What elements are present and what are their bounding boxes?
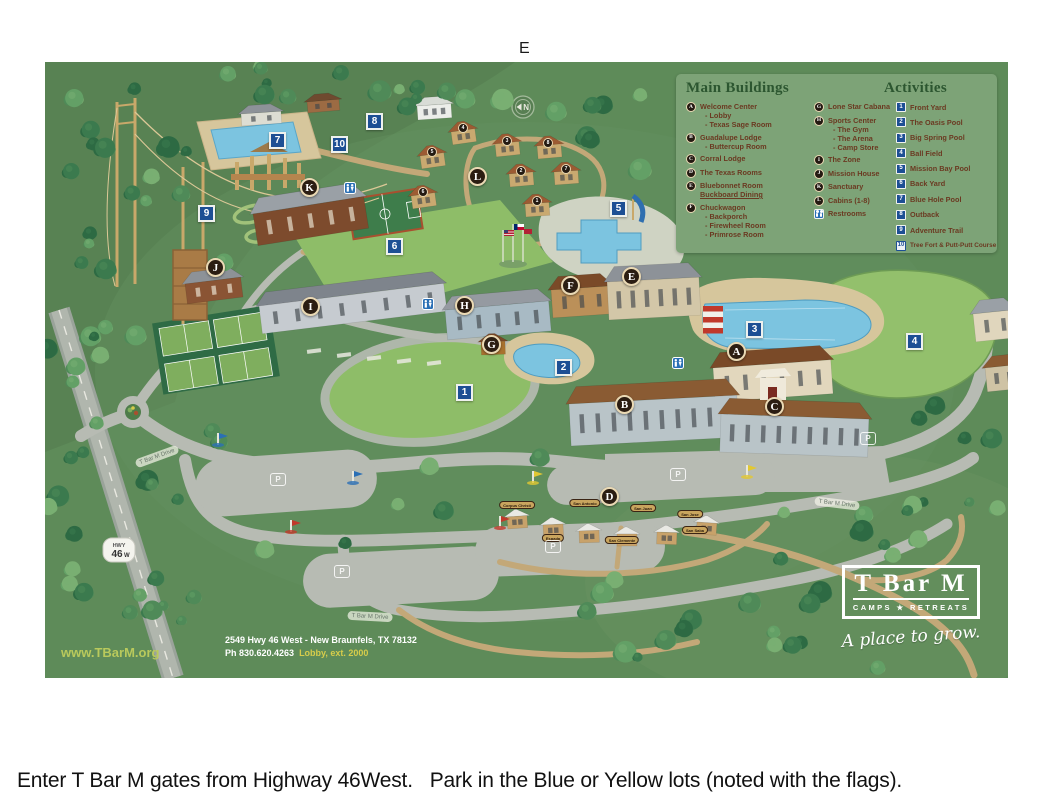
- building-marker-G: G: [482, 335, 501, 354]
- building-marker-C: C: [765, 397, 784, 416]
- legend-activity-3: 3Big Spring Pool: [896, 133, 987, 143]
- legend-building-label: Mission House: [828, 169, 896, 179]
- flag-pennant-icon: [748, 465, 757, 471]
- legend-number-badge: 6: [896, 179, 906, 189]
- activity-marker-10: 10: [331, 136, 348, 153]
- texas-room-label: San Jose: [677, 510, 703, 518]
- flag-base: [212, 443, 224, 447]
- legend-activity-label: Ball Field: [910, 149, 942, 158]
- flag-pennant-icon: [219, 433, 228, 439]
- logo-title: T Bar M: [853, 570, 969, 597]
- legend-activity-label: Adventure Trail: [910, 226, 963, 235]
- legend-building-D: DThe Texas Rooms: [686, 168, 814, 178]
- legend-activity-5: 5Mission Bay Pool: [896, 164, 987, 174]
- legend-restrooms: Restrooms: [814, 209, 896, 219]
- parking-mark: P: [860, 432, 876, 445]
- legend-number-badge: 5: [896, 164, 906, 174]
- cabin-number-7: 7: [561, 164, 571, 174]
- legend-building-label: Corral Lodge: [700, 154, 814, 164]
- cabin-number-5: 5: [427, 147, 437, 157]
- caption-line-1: Enter T Bar M gates from Highway 46West.…: [17, 764, 902, 798]
- flag-pennant-icon: [354, 471, 363, 477]
- cabin-number-4: 4: [458, 123, 468, 133]
- flag-pennant-icon: [292, 520, 301, 526]
- website-link[interactable]: www.TBarM.org: [61, 645, 159, 660]
- legend-buildings-column-2: GLone Star CabanaHSports Center- The Gym…: [814, 102, 896, 256]
- activity-marker-8: 8: [366, 113, 383, 130]
- activity-marker-1: 1: [456, 384, 473, 401]
- page-letter: E: [519, 40, 530, 58]
- building-marker-B: B: [615, 395, 634, 414]
- parking-flag: [290, 520, 292, 532]
- legend-letter-badge: D: [686, 168, 696, 178]
- legend-activity-label: The Oasis Pool: [910, 118, 963, 127]
- legend-activities-column: 1Front Yard2The Oasis Pool3Big Spring Po…: [896, 102, 987, 256]
- legend-activity-9: 9Adventure Trail: [896, 225, 987, 235]
- texas-room-label: Corpus Christi: [499, 501, 535, 509]
- legend-building-label: Guadalupe Lodge- Buttercup Room: [700, 133, 814, 151]
- legend-number-badge: 8: [896, 210, 906, 220]
- legend-number-badge: 1: [896, 102, 906, 112]
- activity-marker-9: 9: [198, 205, 215, 222]
- building-marker-F: F: [561, 276, 580, 295]
- legend-building-label: Chuckwagon- Backporch- Firewheel Room- P…: [700, 203, 814, 239]
- legend-building-label: Lone Star Cabana: [828, 102, 896, 112]
- legend-number-badge: 4: [896, 148, 906, 158]
- legend-letter-badge: E: [686, 181, 696, 191]
- legend-activity-6: 6Back Yard: [896, 179, 987, 189]
- legend-letter-badge: B: [686, 133, 696, 143]
- legend-activity-label: Blue Hole Pool: [910, 195, 962, 204]
- parking-flag: [499, 516, 501, 528]
- activity-marker-2: 2: [555, 359, 572, 376]
- legend-activity-10: 10Tree Fort & Putt-Putt Course: [896, 241, 987, 251]
- legend-building-label: Bluebonnet RoomBuckboard Dining: [700, 181, 814, 199]
- building-marker-H: H: [455, 296, 474, 315]
- legend-building-B: BGuadalupe Lodge- Buttercup Room: [686, 133, 814, 151]
- building-marker-I: I: [301, 297, 320, 316]
- legend-building-label: The Zone: [828, 155, 896, 165]
- address-block: 2549 Hwy 46 West - New Braunfels, TX 781…: [225, 634, 417, 660]
- legend-letter-badge: K: [814, 182, 824, 192]
- parking-flag: [217, 433, 219, 445]
- legend-building-G: GLone Star Cabana: [814, 102, 896, 112]
- flag-base: [285, 530, 297, 534]
- legend-letter-badge: F: [686, 203, 696, 213]
- legend-building-label: Sports Center- The Gym- The Arena- Camp …: [828, 116, 896, 152]
- legend-activity-label: Big Spring Pool: [910, 133, 965, 142]
- legend-letter-badge: G: [814, 102, 824, 112]
- legend-building-I: IThe Zone: [814, 155, 896, 165]
- legend-letter-badge: C: [686, 154, 696, 164]
- cabin-number-3: 3: [502, 136, 512, 146]
- cabin-number-1: 1: [532, 196, 542, 206]
- building-marker-D: D: [600, 487, 619, 506]
- legend-restrooms-label: Restrooms: [828, 209, 896, 219]
- legend-activity-label: Mission Bay Pool: [910, 164, 970, 173]
- texas-room-label: San Clemente: [605, 536, 639, 544]
- activity-marker-4: 4: [906, 333, 923, 350]
- camp-map: N HWY 46 W ABCDEFGHIJKL12345678910438527…: [45, 62, 1008, 678]
- legend-letter-badge: J: [814, 169, 824, 179]
- building-marker-J: J: [206, 258, 225, 277]
- flyer-page: E: [0, 0, 1056, 802]
- parking-flag: [532, 471, 534, 483]
- legend-activity-4: 4Ball Field: [896, 148, 987, 158]
- cabin-number-8: 8: [543, 138, 553, 148]
- building-marker-E: E: [622, 267, 641, 286]
- logo-box: T Bar M CAMPS ★ RETREATS: [842, 565, 980, 619]
- legend-building-label: Cabins (1-8): [828, 196, 896, 206]
- legend-letter-badge: I: [814, 155, 824, 165]
- legend-building-J: JMission House: [814, 169, 896, 179]
- legend-activity-label: Front Yard: [910, 103, 946, 112]
- parking-flag: [352, 471, 354, 483]
- building-marker-K: K: [300, 178, 319, 197]
- phone-number: Ph 830.620.4263: [225, 648, 294, 658]
- legend-letter-badge: L: [814, 196, 824, 206]
- legend-building-L: LCabins (1-8): [814, 196, 896, 206]
- legend-building-label: The Texas Rooms: [700, 168, 814, 178]
- road-label-tbarm-drive: T Bar M Drive: [814, 496, 860, 510]
- legend-building-C: CCorral Lodge: [686, 154, 814, 164]
- legend-number-badge: 3: [896, 133, 906, 143]
- legend-number-badge: 10: [896, 241, 906, 251]
- legend-number-badge: 7: [896, 194, 906, 204]
- legend-letter-badge: A: [686, 102, 696, 112]
- texas-room-label: San Saba: [682, 526, 708, 534]
- legend-main-buildings-title: Main Buildings: [686, 80, 884, 97]
- cabin-number-6: 6: [418, 187, 428, 197]
- flag-pennant-icon: [534, 471, 543, 477]
- legend-activities-title: Activities: [884, 80, 947, 97]
- caption: Enter T Bar M gates from Highway 46West.…: [17, 696, 902, 802]
- legend-activity-label: Outback: [910, 210, 939, 219]
- tbarm-logo: T Bar M CAMPS ★ RETREATS A place to grow…: [838, 565, 984, 647]
- phone-extension: Lobby, ext. 2000: [299, 648, 368, 658]
- legend-panel: Main Buildings Activities AWelcome Cente…: [676, 74, 997, 253]
- logo-subtitle: CAMPS ★ RETREATS: [853, 598, 969, 612]
- flag-base: [527, 481, 539, 485]
- legend-activity-label: Tree Fort & Putt-Putt Course: [910, 241, 996, 250]
- parking-mark: P: [670, 468, 686, 481]
- address-line: 2549 Hwy 46 West - New Braunfels, TX 781…: [225, 634, 417, 647]
- building-marker-L: L: [468, 167, 487, 186]
- legend-number-badge: 2: [896, 117, 906, 127]
- legend-building-A: AWelcome Center- Lobby- Texas Sage Room: [686, 102, 814, 129]
- legend-header: Main Buildings Activities: [686, 80, 987, 97]
- parking-mark: P: [545, 540, 561, 553]
- activity-marker-3: 3: [746, 321, 763, 338]
- road-label-tbarm-drive: T Bar M Drive: [347, 611, 392, 622]
- parking-mark: P: [334, 565, 350, 578]
- activity-marker-7: 7: [269, 132, 286, 149]
- flag-base: [741, 475, 753, 479]
- legend-activity-2: 2The Oasis Pool: [896, 117, 987, 127]
- parking-mark: P: [270, 473, 286, 486]
- legend-building-label: Sanctuary: [828, 182, 896, 192]
- flag-pennant-icon: [501, 516, 510, 522]
- legend-number-badge: 9: [896, 225, 906, 235]
- flag-base: [347, 481, 359, 485]
- legend-activity-label: Back Yard: [910, 179, 945, 188]
- legend-activity-1: 1Front Yard: [896, 102, 987, 112]
- legend-building-F: FChuckwagon- Backporch- Firewheel Room- …: [686, 203, 814, 239]
- restrooms-icon: [814, 209, 824, 219]
- road-label-tbarm-drive: T Bar M Drive: [134, 445, 179, 469]
- legend-building-H: HSports Center- The Gym- The Arena- Camp…: [814, 116, 896, 152]
- cabin-number-2: 2: [516, 166, 526, 176]
- activity-marker-6: 6: [386, 238, 403, 255]
- legend-building-K: KSanctuary: [814, 182, 896, 192]
- building-marker-A: A: [727, 342, 746, 361]
- legend-letter-badge: H: [814, 116, 824, 126]
- legend-activity-8: 8Outback: [896, 210, 987, 220]
- flag-base: [494, 526, 506, 530]
- activity-marker-5: 5: [610, 200, 627, 217]
- texas-room-label: San Juan: [630, 504, 656, 512]
- texas-room-label: San Antonio: [569, 499, 600, 507]
- legend-building-label: Welcome Center- Lobby- Texas Sage Room: [700, 102, 814, 129]
- parking-flag: [746, 465, 748, 477]
- legend-activity-7: 7Blue Hole Pool: [896, 194, 987, 204]
- legend-building-E: EBluebonnet RoomBuckboard Dining: [686, 181, 814, 199]
- legend-buildings-column-1: AWelcome Center- Lobby- Texas Sage RoomB…: [686, 102, 814, 256]
